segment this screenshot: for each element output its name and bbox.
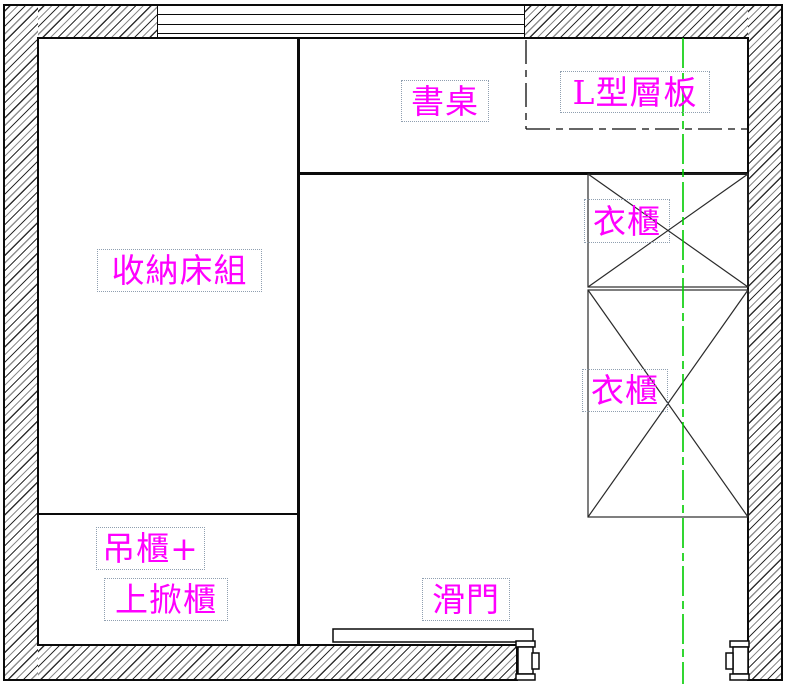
door-jamb-left bbox=[516, 641, 539, 680]
label-desk[interactable]: 書桌 bbox=[401, 80, 489, 122]
label-hanging-cabinet[interactable]: 吊櫃+ bbox=[96, 527, 205, 570]
label-wardrobe-upper[interactable]: 衣櫃 bbox=[584, 199, 670, 243]
label-storage-bed[interactable]: 收納床組 bbox=[97, 249, 262, 292]
label-wardrobe-lower[interactable]: 衣櫃 bbox=[582, 369, 668, 412]
floor-plan-canvas: 收納床組 書桌 L型層板 衣櫃 衣櫃 吊櫃+ 上掀櫃 滑門 bbox=[0, 0, 787, 684]
sliding-door-panel bbox=[333, 629, 533, 642]
label-flip-up-cabinet[interactable]: 上掀櫃 bbox=[104, 578, 228, 621]
door-jamb-right bbox=[726, 641, 749, 680]
label-sliding-door[interactable]: 滑門 bbox=[422, 578, 510, 621]
label-l-shaped-shelf[interactable]: L型層板 bbox=[560, 71, 710, 113]
